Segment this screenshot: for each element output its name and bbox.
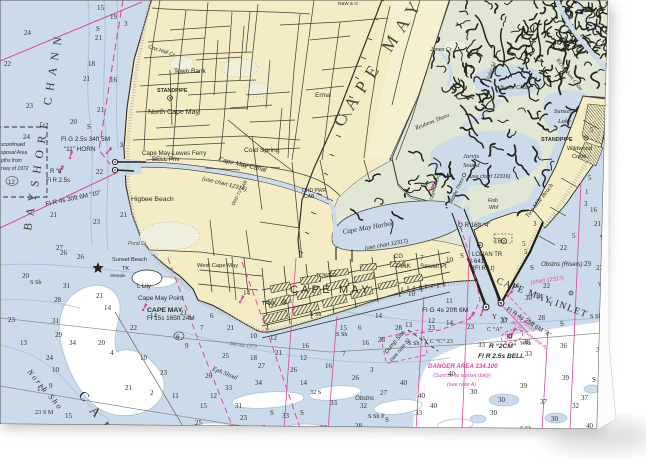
svg-text:Wks: Wks	[520, 340, 532, 347]
svg-text:12: 12	[300, 354, 308, 362]
svg-text:26: 26	[205, 372, 213, 380]
svg-text:pths from: pths from	[0, 158, 22, 164]
svg-text:Obstns (Risers): Obstns (Risers)	[541, 262, 583, 268]
svg-text:39: 39	[520, 382, 528, 390]
svg-text:(use chart 12316): (use chart 12316)	[468, 174, 510, 180]
svg-text:S: S	[385, 416, 389, 424]
svg-text:LORAN TR: LORAN TR	[472, 252, 503, 258]
svg-text:5: 5	[522, 240, 526, 248]
svg-text:Town Bank: Town Bank	[174, 68, 207, 75]
svg-text:14: 14	[150, 312, 158, 320]
svg-text:5: 5	[588, 174, 592, 182]
svg-text:22: 22	[560, 244, 568, 252]
svg-text:S Sh: S Sh	[310, 311, 322, 318]
svg-text:1: 1	[585, 188, 589, 196]
svg-text:28: 28	[538, 314, 546, 322]
svg-text:12: 12	[210, 392, 218, 400]
svg-text:23: 23	[26, 102, 34, 110]
svg-text:13: 13	[405, 321, 413, 329]
svg-text:Steeple: Steeple	[110, 273, 126, 278]
svg-text:31: 31	[235, 402, 243, 410]
svg-text:24: 24	[24, 29, 32, 37]
svg-text:15: 15	[65, 412, 73, 420]
svg-text:TOWER: TOWER	[316, 273, 337, 279]
svg-text:STANDPIPE: STANDPIPE	[157, 88, 188, 94]
svg-text:Y: Y	[548, 300, 553, 308]
svg-text:37: 37	[501, 317, 509, 325]
svg-text:Y C “C” 23: Y C “C” 23	[424, 338, 453, 345]
svg-text:21: 21	[594, 220, 602, 228]
svg-text:21: 21	[95, 34, 103, 42]
svg-text:3: 3	[533, 220, 537, 228]
svg-text:S: S	[560, 320, 564, 328]
svg-text:32: 32	[572, 402, 580, 410]
svg-text:31: 31	[52, 317, 60, 325]
svg-text:21: 21	[120, 211, 128, 219]
svg-text:STANDPIPE: STANDPIPE	[541, 137, 573, 143]
svg-text:TANK: TANK	[262, 301, 277, 307]
svg-text:32: 32	[360, 402, 368, 410]
svg-text:23: 23	[8, 316, 16, 324]
svg-text:6: 6	[210, 312, 214, 320]
svg-text:Cape May Point: Cape May Point	[138, 295, 184, 302]
svg-text:20: 20	[22, 272, 30, 280]
svg-text:Jones Cr: Jones Cr	[429, 47, 452, 53]
svg-text:3: 3	[584, 200, 588, 208]
svg-text:9: 9	[185, 342, 189, 350]
svg-text:21: 21	[180, 309, 188, 317]
svg-text:22: 22	[96, 168, 104, 176]
svg-text:Sunset Beach: Sunset Beach	[112, 257, 147, 263]
svg-text:sposal Area: sposal Area	[1, 150, 27, 156]
svg-text:21: 21	[125, 384, 133, 392]
svg-text:40: 40	[430, 402, 438, 410]
svg-text:40: 40	[418, 392, 426, 400]
svg-text:(Fl R Lt): (Fl R Lt)	[473, 266, 495, 272]
svg-text:S: S	[460, 252, 464, 260]
svg-text:Higbee Beach: Higbee Beach	[131, 196, 174, 203]
svg-text:Fish: Fish	[488, 198, 498, 204]
svg-text:Fl R 2.5s BELL: Fl R 2.5s BELL	[478, 353, 524, 360]
svg-text:7: 7	[342, 350, 346, 358]
svg-text:6: 6	[176, 334, 180, 341]
svg-text:22: 22	[4, 60, 12, 68]
svg-text:10: 10	[250, 332, 258, 340]
svg-text:20: 20	[98, 339, 106, 347]
svg-text:S Sh P: S Sh P	[368, 413, 385, 420]
svg-text:(Sunrise to sunset daily): (Sunrise to sunset daily)	[433, 373, 491, 379]
svg-text:36: 36	[560, 342, 568, 350]
svg-text:37: 37	[581, 394, 589, 402]
svg-text:Fl G 4s 20ft 6M: Fl G 4s 20ft 6M	[422, 307, 469, 314]
svg-text:Q R 16ft “4”: Q R 16ft “4”	[458, 222, 490, 229]
svg-text:19: 19	[110, 13, 118, 21]
svg-text:CAB: CAB	[304, 194, 315, 200]
svg-text:33: 33	[525, 350, 533, 358]
svg-text:39: 39	[562, 374, 570, 382]
svg-text:29: 29	[584, 260, 592, 268]
svg-text:23: 23	[467, 323, 475, 331]
svg-text:West Cape May: West Cape May	[197, 263, 238, 269]
svg-text:26: 26	[352, 374, 360, 382]
svg-text:6: 6	[358, 324, 362, 332]
svg-text:“11” HORN: “11” HORN	[64, 146, 96, 153]
svg-text:16: 16	[110, 76, 118, 84]
svg-text:28: 28	[54, 296, 62, 304]
svg-text:21: 21	[275, 349, 283, 357]
svg-text:21: 21	[96, 292, 104, 300]
svg-text:30: 30	[498, 396, 506, 404]
svg-text:29: 29	[55, 331, 63, 339]
svg-text:21: 21	[50, 211, 58, 219]
svg-text:Swain Chan: Swain Chan	[500, 85, 529, 91]
svg-text:30: 30	[525, 294, 533, 302]
svg-text:2: 2	[150, 389, 154, 397]
svg-text:10: 10	[446, 256, 454, 264]
svg-text:14: 14	[375, 312, 383, 320]
svg-text:12: 12	[8, 179, 15, 186]
svg-text:R&W & G: R&W & G	[338, 1, 358, 6]
svg-text:North Cape May: North Cape May	[148, 109, 199, 116]
svg-text:34: 34	[512, 282, 520, 290]
svg-text:rvey of 1972: rvey of 1972	[1, 166, 29, 172]
svg-text:12: 12	[428, 317, 436, 325]
svg-text:5: 5	[590, 126, 594, 134]
svg-text:Lake: Lake	[557, 118, 571, 125]
svg-text:18: 18	[88, 60, 96, 68]
svg-text:34: 34	[255, 379, 263, 387]
svg-text:12: 12	[270, 334, 278, 342]
svg-text:16: 16	[590, 206, 598, 214]
svg-text:11: 11	[172, 392, 179, 400]
svg-text:16: 16	[302, 342, 310, 350]
svg-text:40: 40	[400, 379, 408, 387]
svg-text:S Sh: S Sh	[408, 340, 420, 347]
svg-text:21: 21	[83, 75, 91, 83]
svg-text:3: 3	[370, 366, 374, 374]
svg-text:14: 14	[300, 379, 308, 387]
svg-text:Cold Spring: Cold Spring	[244, 147, 280, 154]
svg-text:24: 24	[23, 133, 31, 141]
svg-text:18: 18	[250, 354, 258, 362]
svg-text:7: 7	[200, 324, 204, 332]
svg-text:Jarvis: Jarvis	[463, 153, 480, 160]
svg-text:14: 14	[243, 289, 251, 297]
svg-text:20: 20	[70, 118, 78, 126]
svg-text:S: S	[300, 409, 304, 417]
svg-text:5: 5	[572, 232, 576, 240]
svg-text:11: 11	[446, 297, 453, 305]
svg-text:TK: TK	[122, 266, 129, 272]
svg-text:R “2CM”: R “2CM”	[489, 343, 517, 350]
svg-text:14: 14	[104, 304, 112, 312]
svg-text:S: S	[592, 376, 596, 384]
svg-text:33: 33	[478, 341, 486, 349]
svg-text:10: 10	[408, 290, 416, 298]
svg-text:Y: Y	[492, 313, 497, 321]
svg-text:31: 31	[63, 282, 71, 290]
svg-text:26: 26	[290, 366, 298, 374]
svg-text:32 S: 32 S	[310, 389, 322, 396]
svg-text:DANGER AREA 334.100: DANGER AREA 334.100	[428, 363, 498, 370]
svg-text:16: 16	[362, 339, 370, 347]
svg-text:CAPE MAY: CAPE MAY	[290, 284, 372, 296]
svg-text:BELL Priv: BELL Priv	[152, 156, 180, 163]
svg-text:10: 10	[52, 366, 60, 374]
svg-text:Sewell Pt: Sewell Pt	[420, 263, 447, 270]
svg-text:22: 22	[130, 324, 138, 332]
svg-text:23: 23	[240, 414, 248, 422]
svg-text:Fl R 2.5s: Fl R 2.5s	[46, 178, 70, 184]
svg-text:R: R	[536, 292, 541, 300]
svg-text:33: 33	[330, 399, 338, 407]
svg-text:Whf: Whf	[489, 205, 499, 211]
svg-text:7: 7	[420, 254, 424, 262]
svg-text:4: 4	[110, 349, 114, 357]
svg-text:23: 23	[428, 324, 436, 332]
svg-text:Pond Cr: Pond Cr	[128, 241, 147, 247]
svg-text:21: 21	[227, 324, 235, 332]
svg-text:40: 40	[448, 370, 456, 378]
svg-text:21: 21	[97, 106, 105, 114]
svg-text:S: S	[530, 264, 534, 272]
svg-text:Wildwood: Wildwood	[567, 146, 592, 152]
svg-text:27: 27	[56, 244, 64, 252]
svg-text:Erma: Erma	[315, 92, 331, 99]
svg-text:9: 9	[49, 382, 53, 390]
svg-text:15: 15	[200, 402, 208, 410]
svg-text:10: 10	[140, 354, 148, 362]
svg-text:3: 3	[124, 20, 128, 28]
svg-text:23 S M: 23 S M	[35, 409, 54, 416]
svg-text:TANK: TANK	[395, 264, 411, 270]
svg-text:27: 27	[380, 389, 388, 397]
svg-text:5: 5	[524, 248, 528, 256]
svg-text:S: S	[270, 409, 274, 417]
svg-text:25: 25	[222, 352, 230, 360]
svg-text:13: 13	[20, 339, 28, 347]
svg-text:S: S	[96, 25, 100, 33]
svg-text:34: 34	[69, 339, 77, 347]
svg-text:S Sh: S Sh	[336, 331, 348, 338]
svg-text:641t: 641t	[474, 259, 486, 265]
svg-text:16: 16	[325, 362, 333, 370]
svg-text:28: 28	[378, 336, 386, 344]
svg-text:22: 22	[543, 282, 551, 290]
svg-text:R “8”: R “8”	[50, 169, 63, 175]
svg-text:23: 23	[160, 369, 168, 377]
svg-text:L Lily: L Lily	[137, 284, 151, 290]
svg-text:Sound: Sound	[463, 162, 480, 169]
svg-text:S: S	[87, 123, 91, 131]
svg-text:scontinued: scontinued	[1, 142, 25, 148]
svg-text:Fl G 2.5s 34ft 5M: Fl G 2.5s 34ft 5M	[61, 136, 110, 143]
svg-text:30: 30	[505, 333, 513, 341]
svg-text:30: 30	[470, 388, 478, 396]
svg-text:15: 15	[97, 4, 105, 12]
svg-text:33: 33	[415, 409, 423, 417]
svg-text:Crest: Crest	[572, 154, 586, 160]
svg-text:37: 37	[540, 398, 548, 406]
svg-text:24: 24	[46, 354, 54, 362]
svg-text:30: 30	[490, 409, 498, 417]
svg-text:15: 15	[37, 385, 45, 393]
svg-text:CG: CG	[394, 254, 403, 260]
svg-text:28: 28	[395, 324, 403, 332]
svg-text:27: 27	[258, 362, 266, 370]
svg-text:26: 26	[77, 253, 85, 261]
svg-text:33: 33	[225, 384, 233, 392]
svg-text:S Sh: S Sh	[30, 279, 42, 286]
svg-text:33: 33	[282, 412, 290, 420]
svg-text:C “A”: C “A”	[487, 326, 503, 333]
svg-text:23: 23	[93, 218, 101, 226]
svg-text:Sunset: Sunset	[554, 108, 571, 115]
svg-text:14: 14	[446, 319, 454, 327]
svg-text:30: 30	[551, 415, 559, 423]
